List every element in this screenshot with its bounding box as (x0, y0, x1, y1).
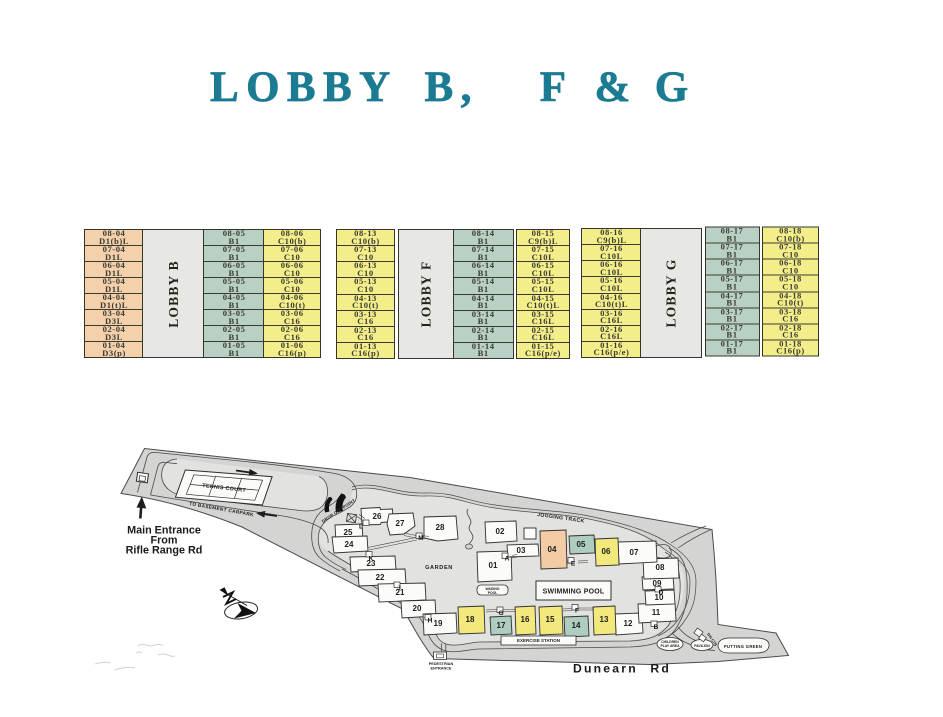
svg-text:06: 06 (602, 547, 611, 556)
svg-text:27: 27 (396, 519, 405, 528)
svg-text:19: 19 (434, 619, 443, 628)
svg-text:ENTRANCE: ENTRANCE (430, 666, 452, 670)
svg-text:22: 22 (376, 573, 385, 582)
svg-text:02: 02 (496, 527, 505, 536)
svg-text:L: L (359, 524, 363, 531)
svg-text:H: H (428, 618, 433, 625)
svg-text:24: 24 (345, 540, 354, 549)
svg-text:13: 13 (600, 615, 609, 624)
svg-text:11: 11 (652, 608, 661, 617)
svg-text:25: 25 (344, 528, 353, 537)
svg-text:Rifle Range Rd: Rifle Range Rd (126, 545, 203, 557)
svg-text:01: 01 (489, 561, 498, 570)
svg-text:17: 17 (497, 621, 506, 630)
svg-text:PAVILION: PAVILION (694, 644, 710, 648)
svg-text:D: D (659, 590, 664, 597)
svg-text:SWIMMING POOL: SWIMMING POOL (543, 589, 605, 596)
svg-text:Dunearn Rd: Dunearn Rd (573, 662, 671, 676)
svg-text:15: 15 (546, 615, 555, 624)
svg-text:08: 08 (656, 563, 665, 572)
svg-text:A: A (505, 556, 510, 563)
svg-text:14: 14 (572, 621, 581, 630)
svg-text:GARDEN: GARDEN (425, 565, 453, 571)
svg-text:18: 18 (466, 615, 475, 624)
svg-text:12: 12 (624, 619, 633, 628)
svg-text:J: J (397, 585, 401, 592)
svg-text:16: 16 (521, 615, 530, 624)
svg-text:20: 20 (413, 604, 422, 613)
svg-text:K: K (369, 556, 374, 563)
svg-text:PUTTING GREEN: PUTTING GREEN (724, 644, 762, 649)
svg-text:26: 26 (373, 512, 382, 521)
svg-text:EXERCISE STATION: EXERCISE STATION (517, 638, 560, 643)
svg-text:04: 04 (548, 545, 557, 554)
svg-text:PLAY AREA: PLAY AREA (660, 644, 680, 648)
svg-text:M: M (418, 535, 423, 542)
svg-text:28: 28 (436, 523, 445, 532)
svg-text:07: 07 (630, 548, 639, 557)
svg-text:B: B (654, 624, 659, 631)
svg-text:G: G (498, 610, 503, 617)
svg-text:POOL: POOL (488, 591, 498, 595)
svg-text:F: F (575, 608, 579, 615)
svg-text:05: 05 (577, 540, 586, 549)
svg-text:03: 03 (517, 546, 526, 555)
svg-text:E: E (571, 561, 576, 568)
